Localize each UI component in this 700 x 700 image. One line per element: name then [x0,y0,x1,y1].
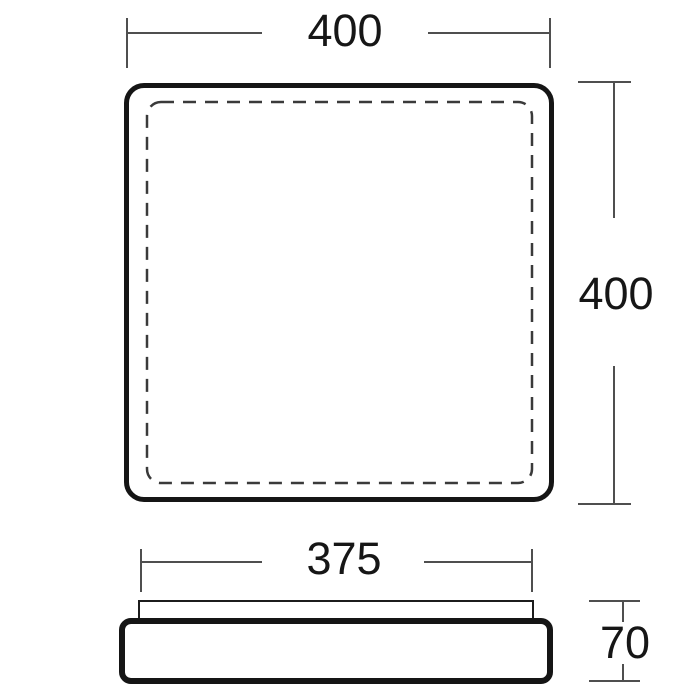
dim-right-height-extension-top [578,81,631,83]
dim-top-width-extension-right [549,18,551,68]
dim-right-height-label: 400 [573,271,659,317]
dim-top-width-label: 400 [262,8,428,54]
dim-side-height-extension-top [589,600,640,602]
dim-top-width-line-right [428,32,551,34]
dim-side-width-extension-right [531,549,533,592]
dim-side-width-line-left [141,561,262,563]
dim-right-height-extension-bottom [578,503,631,505]
dim-side-width-label: 375 [262,536,426,582]
dim-side-height-label: 70 [590,620,660,666]
dim-side-width-extension-left [140,549,142,592]
technical-drawing-canvas: 400 400 375 70 [0,0,700,700]
fixture-outer-outline [124,83,554,502]
dim-top-width-extension-left [126,18,128,68]
base-profile-outline [119,618,553,684]
dim-top-width-line-left [127,32,262,34]
dim-side-width-line-right [424,561,533,563]
dim-right-height-line-lower [613,366,615,504]
dim-right-height-line-upper [613,83,615,218]
dim-side-height-extension-bottom [589,680,640,682]
